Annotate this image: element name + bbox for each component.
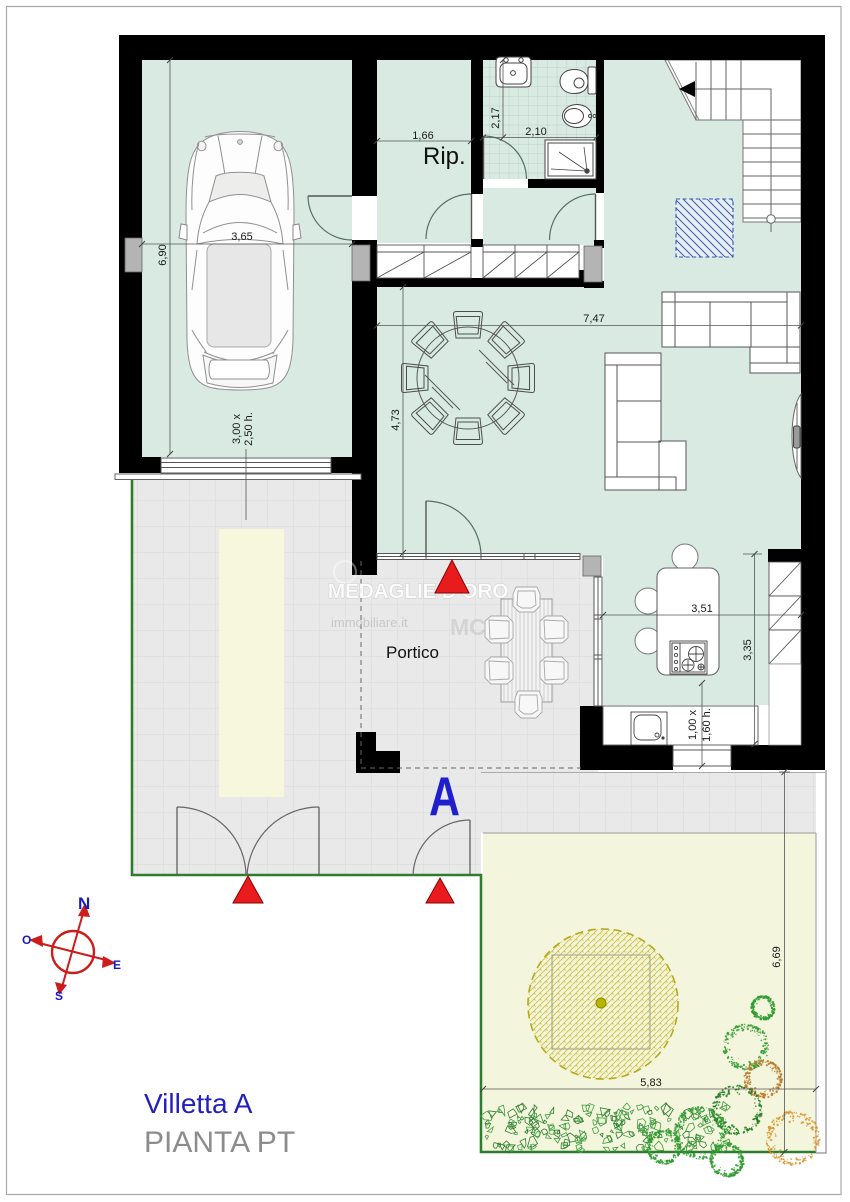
svg-text:A: A [429,765,460,827]
svg-text:6,90: 6,90 [157,244,169,265]
svg-text:3,65: 3,65 [231,231,252,243]
svg-text:PIANTA PT: PIANTA PT [144,1126,295,1159]
svg-text:1,66: 1,66 [412,130,433,142]
svg-text:1,00 x: 1,00 x [687,710,699,740]
svg-text:2,17: 2,17 [490,107,502,128]
svg-text:E: E [113,958,121,972]
svg-text:S: S [55,989,63,1003]
svg-text:3,35: 3,35 [742,639,754,660]
svg-text:3,00 x: 3,00 x [231,414,243,444]
svg-text:Rip.: Rip. [423,143,466,170]
svg-text:4,73: 4,73 [390,409,402,430]
svg-text:Villetta A: Villetta A [144,1088,253,1119]
svg-text:MEDAGLIE D'ORO: MEDAGLIE D'ORO [328,580,508,603]
svg-text:2,50 h.: 2,50 h. [243,412,255,446]
svg-text:2,10: 2,10 [525,126,546,138]
svg-text:5,83: 5,83 [640,1077,661,1089]
svg-text:N: N [78,894,90,913]
svg-text:1,60 h.: 1,60 h. [701,708,713,742]
svg-text:O: O [22,933,31,947]
svg-text:3,51: 3,51 [691,603,712,615]
svg-text:7,47: 7,47 [583,313,604,325]
svg-text:immobiliare.it: immobiliare.it [331,615,408,630]
svg-text:Portico: Portico [386,643,439,662]
svg-text:6,69: 6,69 [771,946,783,967]
svg-text:MC: MC [450,614,486,640]
